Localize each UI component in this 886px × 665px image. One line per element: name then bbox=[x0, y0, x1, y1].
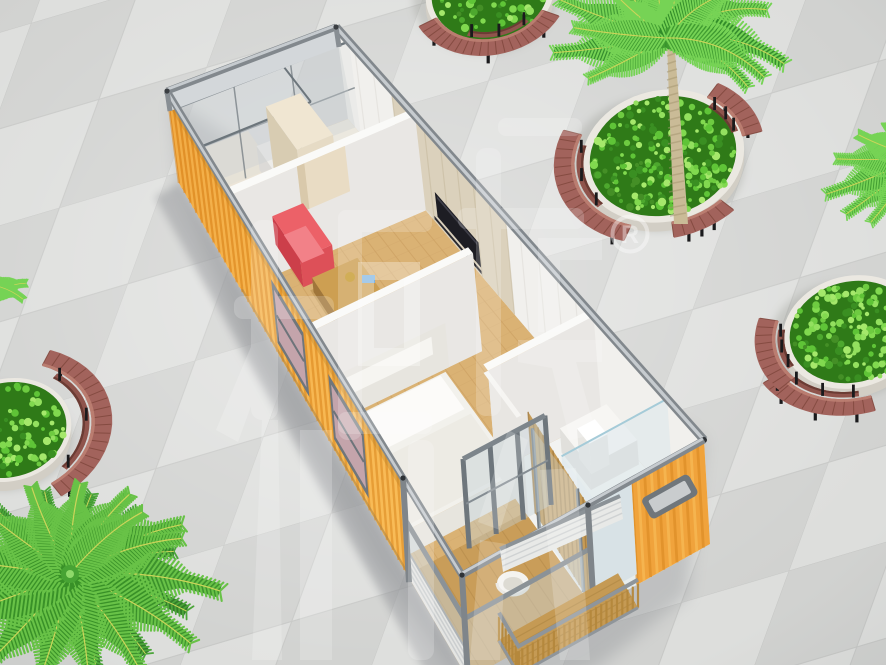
svg-text:R: R bbox=[621, 221, 639, 249]
